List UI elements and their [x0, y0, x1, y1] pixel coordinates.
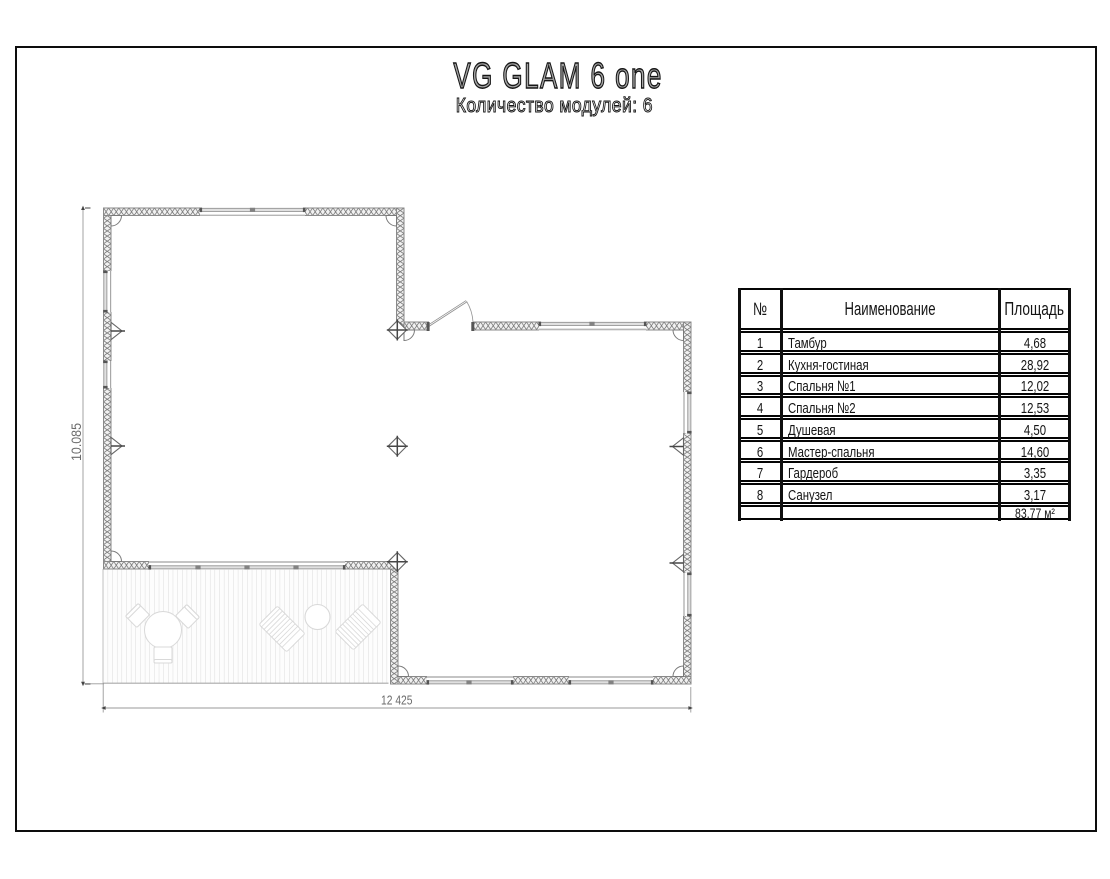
svg-text:10.085: 10.085 — [69, 423, 84, 461]
svg-text:12 425: 12 425 — [381, 693, 413, 708]
